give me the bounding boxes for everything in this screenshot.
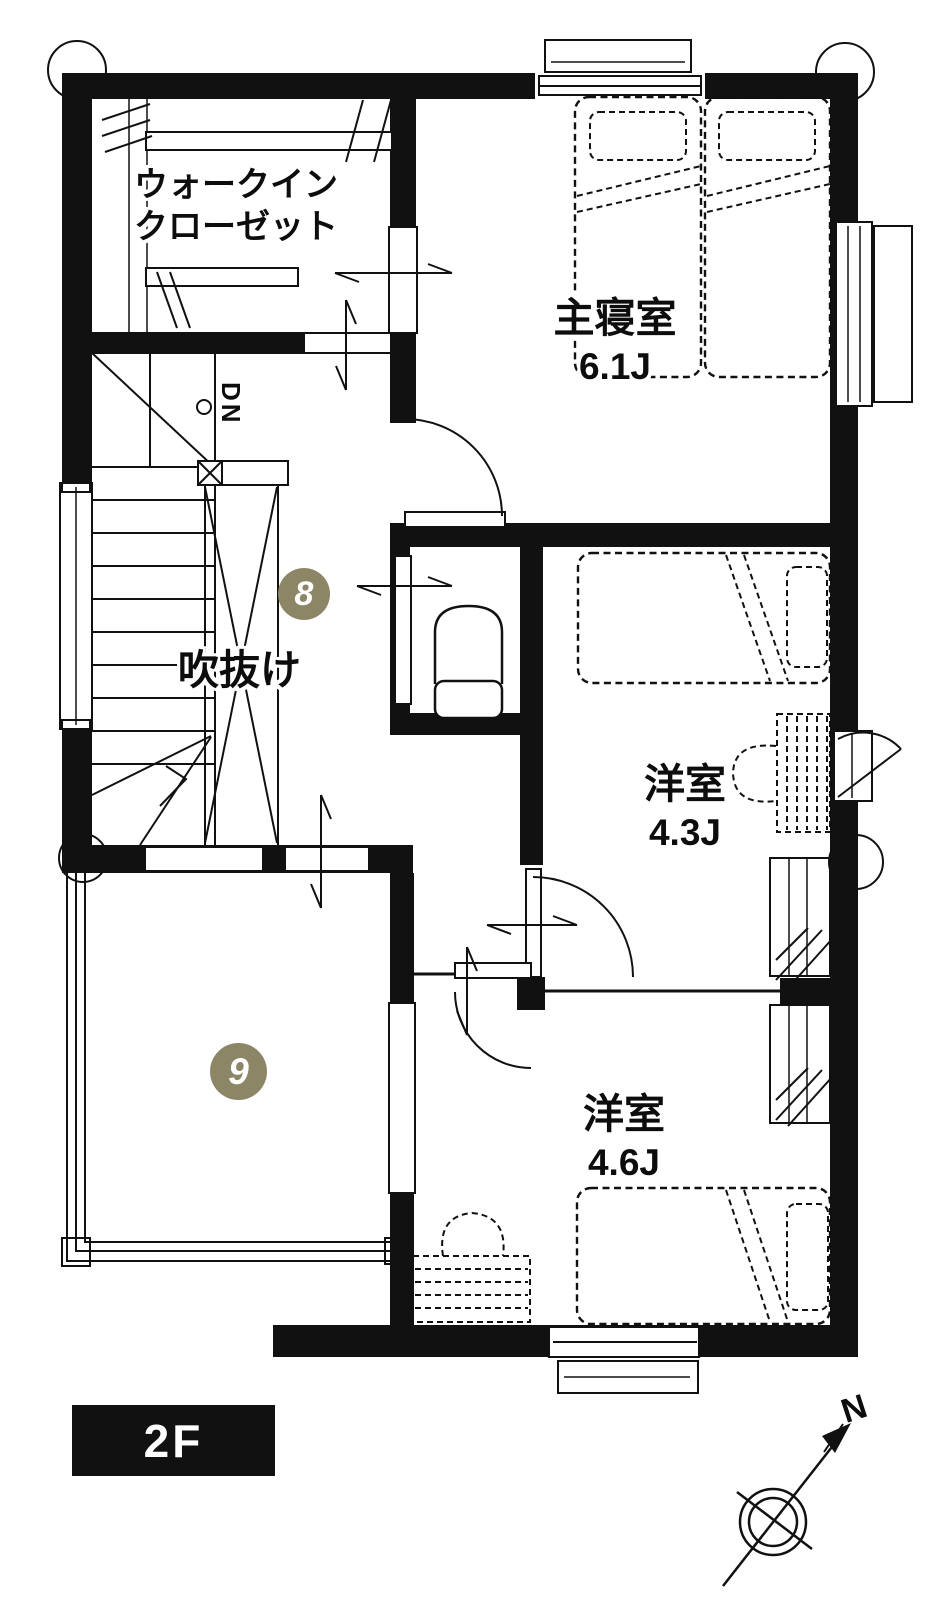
stairs: [92, 333, 215, 845]
sliding-door-room9-a: [145, 847, 263, 871]
room-size: 6.1J: [528, 346, 702, 388]
window-left-stairs: [60, 483, 92, 729]
sliding-door-room9-right: [389, 1003, 415, 1193]
room-name: 洋室: [537, 1080, 711, 1140]
door-leaf-master: [405, 512, 505, 527]
toilet-fixture: [435, 606, 502, 718]
hinged-doors: [405, 419, 633, 1068]
room-label-western-4-6: 洋室 4.6J: [537, 1080, 711, 1184]
sliding-door-room9-b: [285, 847, 369, 871]
hanger-rod: [146, 268, 298, 286]
room-name: 主寝室: [528, 284, 702, 344]
room-size: 4.6J: [537, 1142, 711, 1184]
hanger-rod: [146, 132, 392, 150]
room-label-line1: ウォークイン: [134, 166, 338, 204]
floor-plan-canvas: ウォークイン クローゼット 主寝室 6.1J 吹抜け 洋室 4.3J 洋室 4.…: [0, 0, 940, 1600]
sliding-door-wic-bedroom: [389, 227, 417, 333]
sliding-door-toilet: [395, 556, 411, 704]
chair-room46: [442, 1213, 503, 1256]
plan-marker-8: 8: [278, 568, 330, 620]
stair-direction-arrowhead: [160, 766, 186, 806]
sliding-door-wic-hall: [304, 333, 391, 353]
room-label-western-4-3: 洋室 4.3J: [598, 750, 772, 854]
pillow: [787, 567, 827, 667]
stairs-down-label: DN: [215, 382, 246, 426]
pillow: [590, 112, 686, 160]
door-leaf-room43: [526, 869, 541, 977]
room-name: 洋室: [598, 750, 772, 810]
window-top-master: [535, 40, 705, 101]
floor-badge: 2F: [72, 1405, 275, 1476]
bed-room43: [578, 553, 830, 683]
sliding-door-panels: [145, 227, 417, 1193]
compass-icon: [723, 1423, 851, 1586]
door-arc-room43: [533, 877, 633, 977]
room-label-void: 吹抜け: [178, 636, 301, 696]
door-arc-master: [405, 419, 502, 516]
plan-marker-9: 9: [210, 1043, 267, 1100]
room-label-line2: クローゼット: [134, 208, 338, 246]
room-size: 4.3J: [598, 812, 772, 854]
pillow: [787, 1204, 828, 1310]
desk-room46: [413, 1213, 530, 1322]
bed-master-2: [705, 97, 830, 377]
door-mullion: [267, 845, 283, 873]
window-bottom: [549, 1327, 699, 1393]
pillow: [719, 112, 815, 160]
bed-room46: [577, 1188, 830, 1324]
window-right-master: [836, 222, 912, 406]
room-label-master-bedroom: 主寝室 6.1J: [528, 284, 702, 388]
stair-start-marker: [197, 400, 211, 414]
room-label-walk-in-closet: ウォークイン クローゼット: [134, 164, 338, 248]
window-right-casement: [834, 731, 901, 801]
